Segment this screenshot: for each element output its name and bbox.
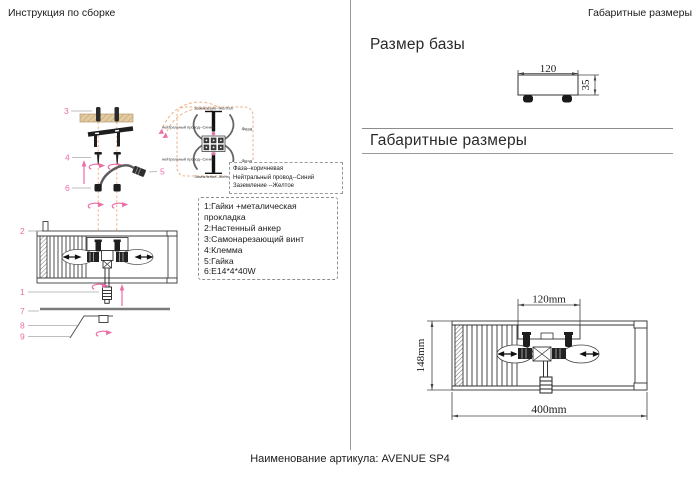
connection-dot	[212, 152, 215, 155]
wire-color-line: Фаза--коричневая	[233, 165, 339, 174]
alignment-guides	[98, 122, 117, 237]
vertical-divider	[350, 0, 351, 450]
rotate-arrow-icon	[89, 163, 105, 169]
base-height-label: 35	[580, 79, 592, 91]
parts-list: 1:Гайки +металическая прокладка 2:Настен…	[198, 197, 338, 280]
instruction-sheet: Инструкция по сборке Габаритные размеры	[0, 0, 700, 483]
article-name: Наименование артикула: AVENUE SP4	[0, 453, 700, 465]
callout-9: 9	[20, 332, 25, 342]
parts-list-item: 1:Гайки +металическая прокладка	[204, 201, 332, 223]
power-wire	[100, 165, 146, 187]
wire-color-line: Нейтральный провод--Синий	[233, 174, 339, 183]
width-label: 400mm	[531, 404, 566, 416]
callout-2: 2	[20, 226, 25, 236]
height-dimension	[427, 321, 452, 390]
parts-list-item: 4:Клемма	[204, 245, 332, 256]
rod-finial	[103, 287, 112, 303]
screws	[95, 152, 121, 164]
terminal-block	[202, 136, 225, 152]
phase-label-top: Фаза	[242, 127, 253, 132]
up-arrow-icon	[82, 160, 87, 184]
base-size-title: Размер базы	[370, 36, 465, 54]
bracket-width-label: 120mm	[532, 294, 566, 306]
ceiling-board	[80, 107, 133, 122]
base-dimension-drawing: 120 35	[480, 58, 620, 108]
ground-label-bottom: Заземление--Желтая	[194, 174, 232, 179]
parts-list-item: 3:Самонарезающий винт	[204, 234, 332, 245]
page-title-right: Габаритные размеры	[588, 7, 692, 19]
wire-color-line: Заземление --Желтое	[233, 182, 339, 191]
callout-1: 1	[20, 287, 25, 297]
section-divider-top	[362, 128, 673, 129]
overall-dimension-drawing: 120mm 148mm 400mm	[405, 285, 690, 433]
nuts	[95, 184, 121, 192]
neutral-label-bottom: нейтральный провод--Синий	[162, 157, 214, 162]
rod-finial	[540, 377, 552, 393]
callout-4: 4	[65, 153, 70, 163]
rotate-arrow-icon	[88, 202, 104, 208]
neutral-label-top: нейтральный провод--Синий	[162, 125, 214, 130]
parts-list-item: 6:E14*4*40W	[204, 266, 332, 277]
up-arrow-icon	[120, 284, 125, 306]
section-divider-bottom	[362, 153, 673, 154]
callout-8: 8	[20, 321, 25, 331]
callout-3: 3	[64, 106, 69, 116]
mounting-bracket	[88, 129, 133, 148]
base-width-label: 120	[540, 63, 557, 75]
callout-7: 7	[20, 306, 25, 316]
height-label: 148mm	[415, 338, 427, 372]
callout-6: 6	[65, 183, 70, 193]
callout-5: 5	[160, 167, 165, 177]
rotate-arrow-icon	[96, 330, 112, 336]
overall-size-title: Габаритные размеры	[370, 132, 527, 150]
base-feet	[523, 95, 572, 103]
wall-tab	[43, 222, 48, 232]
rotate-arrow-icon	[112, 202, 128, 208]
parts-list-item: 2:Настенный анкер	[204, 223, 332, 234]
connection-dot	[212, 132, 215, 135]
parts-list-item: 5:Гайка	[204, 256, 332, 267]
ground-label-top: Заземление--Желтая	[194, 106, 232, 111]
wire-color-legend: Фаза--коричневая Нейтральный провод--Син…	[229, 162, 343, 194]
page-title-left: Инструкция по сборке	[8, 7, 115, 19]
